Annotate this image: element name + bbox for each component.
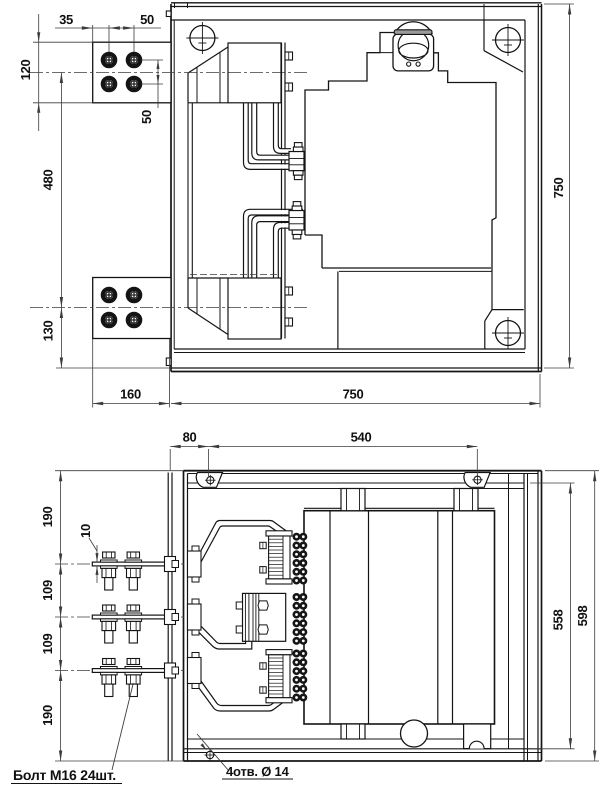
svg-text:Болт М16 24шт.: Болт М16 24шт. (13, 767, 116, 783)
svg-text:4отв. Ø 14: 4отв. Ø 14 (226, 764, 290, 779)
svg-text:750: 750 (343, 387, 364, 402)
svg-text:598: 598 (575, 606, 590, 627)
svg-text:540: 540 (351, 430, 372, 445)
svg-text:80: 80 (183, 430, 197, 445)
svg-text:190: 190 (40, 507, 55, 528)
svg-text:50: 50 (139, 110, 154, 124)
svg-text:35: 35 (59, 12, 73, 27)
svg-text:109: 109 (40, 580, 55, 601)
svg-text:160: 160 (120, 387, 141, 402)
svg-text:50: 50 (140, 12, 154, 27)
svg-text:480: 480 (41, 170, 56, 191)
svg-text:130: 130 (41, 321, 56, 342)
svg-text:750: 750 (551, 178, 566, 199)
svg-text:190: 190 (40, 705, 55, 726)
svg-text:10: 10 (78, 524, 93, 538)
svg-text:120: 120 (18, 60, 33, 81)
svg-text:558: 558 (551, 610, 566, 631)
svg-text:109: 109 (40, 634, 55, 655)
